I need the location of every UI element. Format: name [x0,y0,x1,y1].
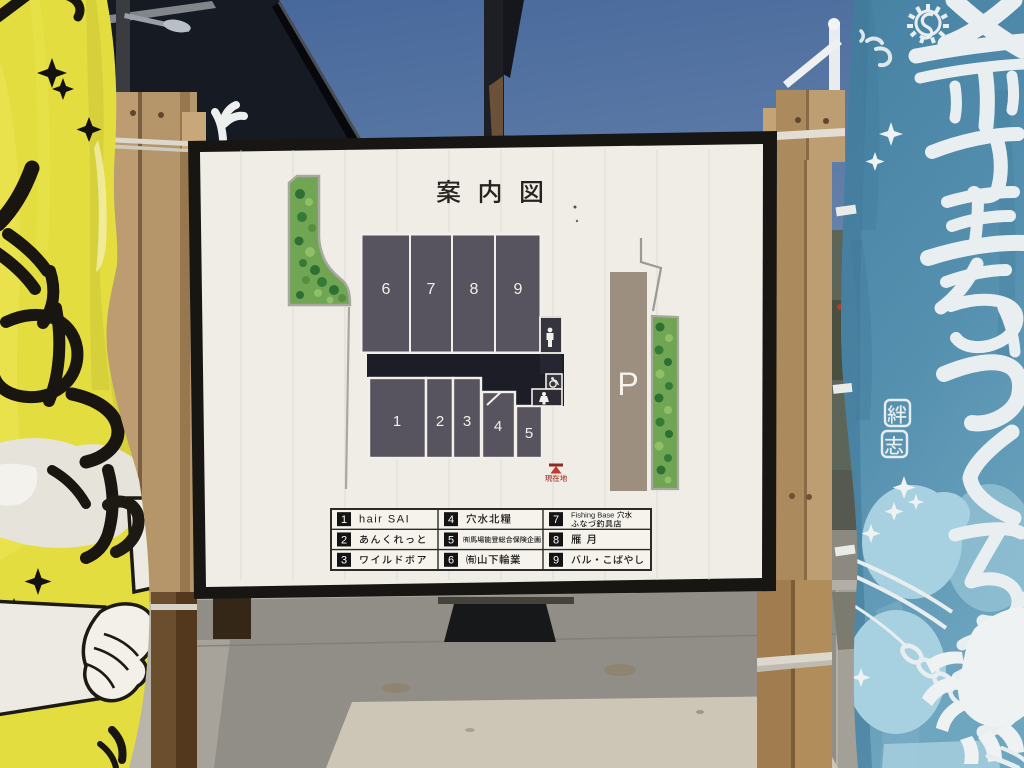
svg-text:7: 7 [553,514,559,526]
svg-text:4: 4 [494,418,502,435]
svg-text:P: P [617,366,638,402]
svg-text:hair SAI: hair SAI [359,514,410,526]
svg-text:2: 2 [436,413,444,430]
svg-text:6: 6 [382,281,391,298]
svg-text:1: 1 [393,413,401,430]
svg-text:5: 5 [448,534,454,546]
svg-text:5: 5 [525,425,533,442]
svg-text:6: 6 [448,555,454,567]
svg-text:4: 4 [448,514,454,526]
svg-text:2: 2 [341,534,347,546]
svg-text:8: 8 [470,281,479,298]
svg-text:9: 9 [514,281,523,298]
svg-text:1: 1 [341,514,347,526]
svg-text:3: 3 [463,413,471,430]
svg-text:8: 8 [553,534,559,546]
svg-text:Fishing Base: Fishing Base [571,511,614,520]
svg-text:3: 3 [341,555,347,567]
svg-text:7: 7 [427,281,436,298]
svg-text:9: 9 [553,555,559,567]
